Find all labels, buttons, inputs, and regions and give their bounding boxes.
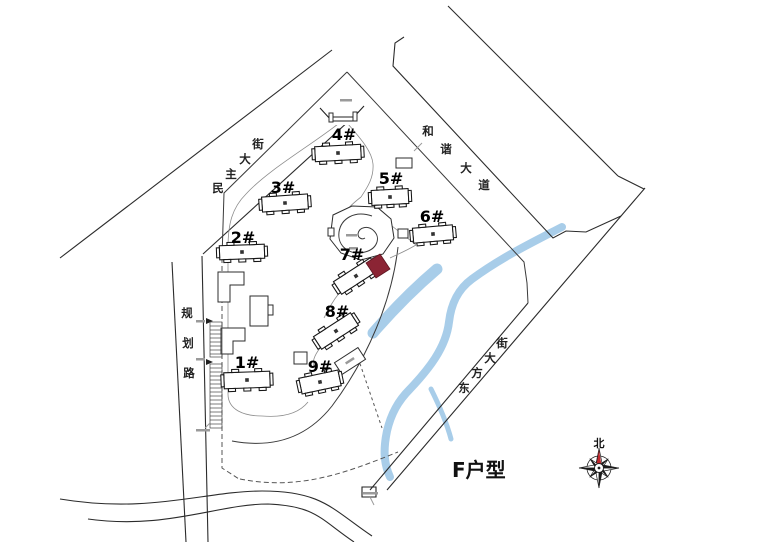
site-plan-canvas: 民主大街和谐大道规划路东方大街 1#2#3#4#5#6#7#8#9# 北 F户型 — [0, 0, 768, 542]
road-bottom-outer — [60, 491, 372, 536]
building-label-6#: 6# — [420, 207, 445, 226]
street-name-char-民主大街: 街 — [251, 137, 264, 151]
street-name-char-东方大街: 街 — [495, 336, 508, 350]
water-layer — [373, 227, 562, 477]
building-label-2#: 2# — [231, 228, 256, 247]
building-label-3#: 3# — [271, 178, 296, 197]
ancillary-building — [218, 272, 244, 302]
road-junction-link — [618, 176, 644, 189]
street-name-char-民主大街: 大 — [239, 152, 251, 166]
west-entrances — [196, 318, 222, 432]
ancillary-building — [250, 296, 268, 326]
street-name-char-东方大街: 方 — [471, 366, 483, 380]
street-name-char-规划路: 规 — [181, 306, 193, 320]
street-name-char-和谐大道: 大 — [460, 161, 472, 175]
plan-type-label: F户型 — [452, 458, 506, 482]
street-name-char-规划路: 路 — [183, 366, 195, 380]
ancillary-building — [294, 352, 307, 364]
building-5# — [368, 185, 412, 208]
ancillary-building — [221, 328, 245, 354]
north-gate — [320, 99, 364, 125]
building-label-1#: 1# — [235, 353, 260, 372]
compass-north-label: 北 — [594, 436, 605, 450]
street-name-char-东方大街: 东 — [458, 381, 470, 395]
road-minzhu-outer — [60, 50, 332, 258]
building-label-8#: 8# — [325, 302, 350, 321]
street-name-char-和谐大道: 和 — [422, 124, 434, 138]
parking-hatch-strips — [210, 322, 222, 428]
ancillary-building — [268, 305, 273, 315]
ancillary-building-annex — [334, 348, 365, 375]
ancillary-building — [398, 229, 408, 238]
building-4# — [311, 141, 364, 165]
building-label-5#: 5# — [379, 169, 404, 188]
street-name-char-和谐大道: 道 — [478, 178, 490, 192]
site-plan-svg: 民主大街和谐大道规划路东方大街 1#2#3#4#5#6#7#8#9# 北 F户型 — [0, 0, 768, 542]
stream — [385, 227, 562, 477]
street-name-char-规划路: 划 — [182, 336, 194, 350]
boundary-layer — [222, 72, 528, 483]
road-guihua-east — [202, 256, 208, 542]
building-label-4#: 4# — [332, 125, 357, 144]
street-name-char-民主大街: 民 — [212, 181, 224, 195]
street-name-char-和谐大道: 谐 — [440, 142, 452, 156]
street-name-char-东方大街: 大 — [484, 351, 496, 365]
building-label-9#: 9# — [308, 357, 333, 376]
road-bottom-inner — [88, 504, 354, 542]
boundary-parcel-dashed — [240, 452, 398, 483]
building-label-7#: 7# — [340, 245, 365, 264]
pond-ribbon — [373, 269, 437, 333]
road-hexie-east — [448, 6, 618, 176]
street-name-char-民主大街: 主 — [225, 167, 237, 181]
compass-rose — [579, 448, 619, 488]
ancillary-building — [396, 158, 412, 168]
